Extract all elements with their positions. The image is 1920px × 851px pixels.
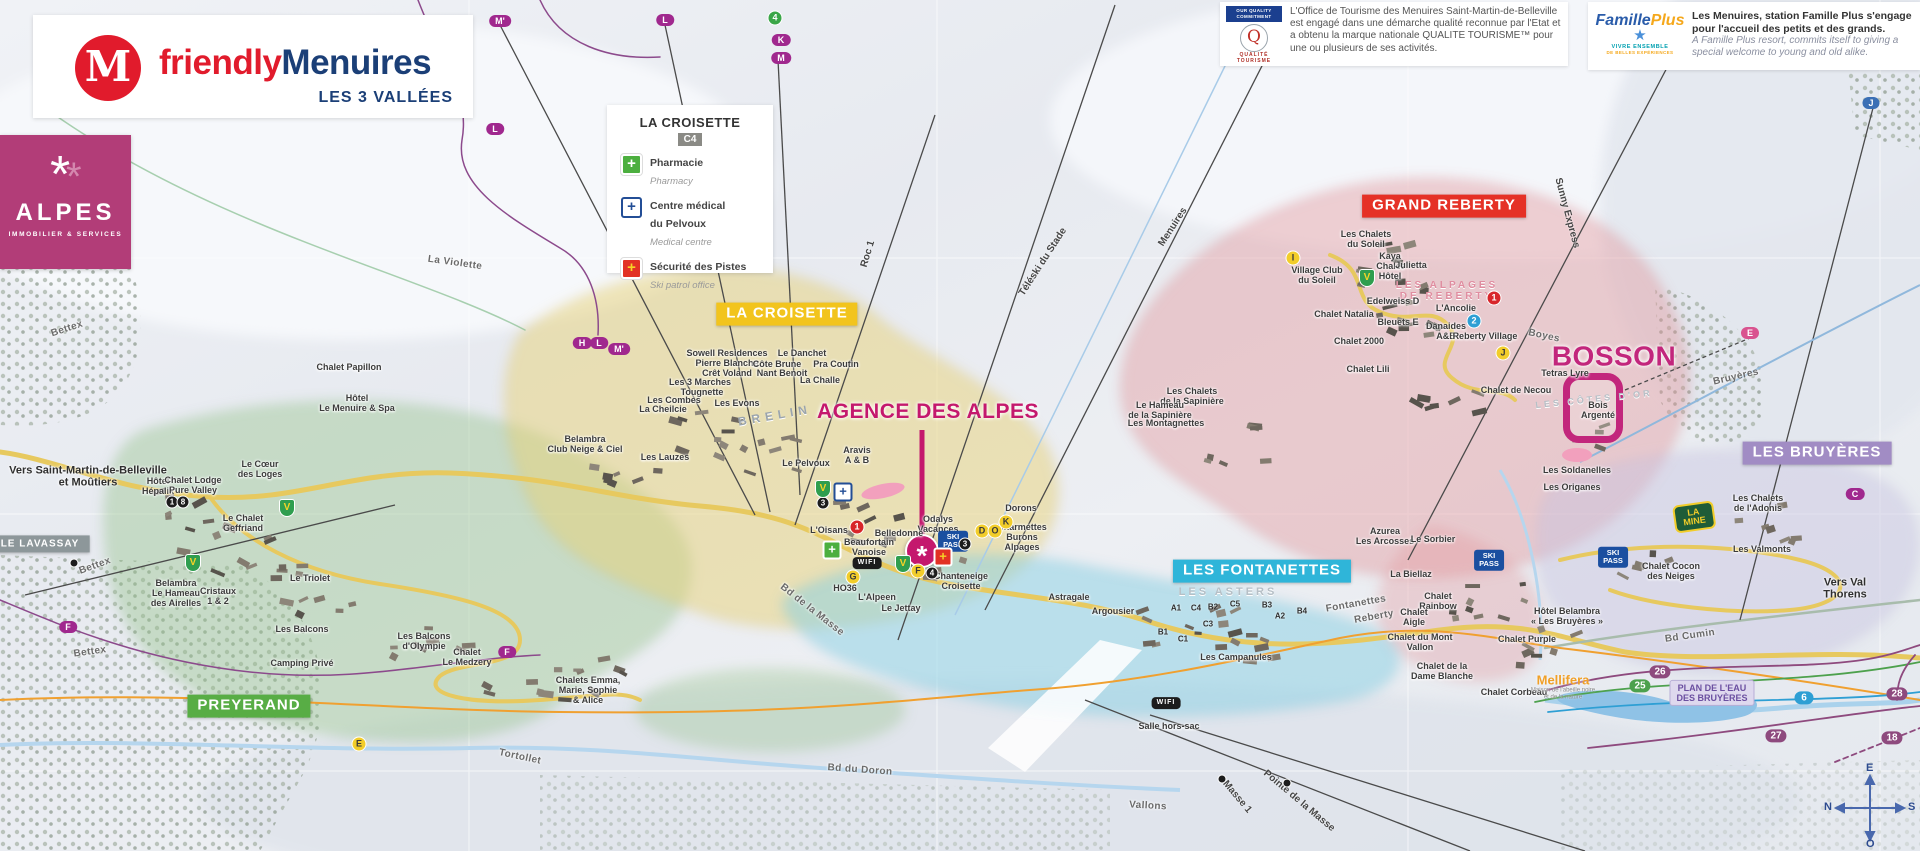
lift-station-H: H: [573, 337, 592, 349]
pharmacy-cross-icon: +: [621, 154, 642, 175]
legend-card: LA CROISETTE C4 + Pharmacie Pharmacy + C…: [607, 105, 773, 273]
lift-station-J: J: [1862, 97, 1879, 109]
menuires-m-icon: M: [75, 35, 141, 101]
wifi-badge: WIFI: [853, 557, 882, 569]
map-place-label: Azurea Les Arcosses: [1356, 526, 1414, 546]
agency-subtitle: IMMOBILIER & SERVICES: [0, 231, 131, 238]
map-place-label: Chalet Lodge Pure Valley: [164, 475, 221, 495]
map-place-label: Le Danchet: [778, 348, 827, 358]
lift-station-E: E: [1741, 327, 1759, 339]
la-mine-badge: LA MINE: [1672, 500, 1716, 533]
map-place-label: Chalet Aigle: [1400, 607, 1428, 627]
map-place-label: La Challe: [800, 375, 840, 385]
map-place-label: Bd du Doron: [827, 762, 893, 778]
ski-patrol-cross-icon: +: [621, 258, 642, 279]
poi-marker-8: 8: [177, 496, 190, 509]
map-place-label: Les Evons: [714, 398, 759, 408]
map-place-label: C3: [1203, 621, 1213, 630]
poi-marker-1: 1: [850, 520, 865, 535]
zone-banner-les-bruyeres: LES BRUYÈRES: [1743, 442, 1892, 465]
poi-marker-3: 3: [817, 497, 830, 510]
brand-menuires: Menuires: [281, 43, 431, 82]
les-menuires-resort-map: LA CROISETTEGRAND REBERTYLES FONTANETTES…: [0, 0, 1920, 851]
resort-brand: friendlyMenuires: [159, 43, 431, 83]
map-place-label: B1: [1158, 629, 1168, 638]
map-place-label: Reberty: [1353, 608, 1394, 626]
map-place-label: Le Jettay: [881, 603, 920, 613]
resort-logo-card: M friendlyMenuires LES 3 VALLÉES: [33, 15, 473, 118]
village-shield-icon: V: [815, 480, 831, 498]
plan-eau-badge: PLAN DE L'EAU DES BRUYÈRES: [1669, 680, 1754, 706]
map-place-label: Le Triolet: [290, 573, 330, 583]
lift-station-L: L: [486, 123, 504, 135]
map-place-label: La Cheilcie: [639, 404, 687, 414]
map-place-label: Edelweiss D: [1367, 296, 1420, 306]
legend-label-en: Pharmacy: [650, 176, 693, 187]
map-place-label: Bois Argenté: [1581, 400, 1615, 420]
map-place-label: Cristaux 1 & 2: [200, 586, 236, 606]
map-place-label: Salle hors-sac: [1138, 721, 1199, 731]
famille-plus-text-en: A Famille Plus resort, commits itself to…: [1692, 35, 1914, 59]
ski-pass-badge: SKI PASS: [1598, 547, 1628, 568]
map-place-label: La Biellaz: [1390, 569, 1432, 579]
map-place-label: Pointe de la Masse: [1261, 768, 1337, 834]
map-place-label: Les Chalets du Soleil: [1341, 229, 1392, 249]
quality-tourism-card: OUR QUALITY COMMITMENT Q QUALITÉ TOURISM…: [1220, 2, 1568, 66]
quality-commitment-badge: OUR QUALITY COMMITMENT: [1226, 6, 1282, 22]
map-place-label: Hôtel Belambra « Les Bruyères »: [1531, 606, 1603, 626]
map-place-label: Chalet de la Dame Blanche: [1411, 661, 1473, 681]
map-place-label: Pra Coutin: [813, 359, 859, 369]
map-place-label: C4: [1191, 605, 1201, 614]
map-place-label: Les Origanes: [1543, 482, 1600, 492]
legend-label-fr: Pharmacie: [650, 157, 703, 169]
mellifera-sub: Maison de l'abeille noire et de la natur…: [1531, 687, 1595, 700]
poi-marker-4: 4: [926, 567, 939, 580]
map-place-label: Les Soldanelles: [1543, 465, 1611, 475]
map-place-label: A1: [1171, 605, 1181, 614]
compass-top: E: [1866, 762, 1873, 774]
map-place-label: B4: [1297, 608, 1307, 617]
map-place-label: Reberty Village: [1453, 331, 1518, 341]
lift-station-C: C: [1846, 488, 1865, 500]
trail-badge-18: 18: [1881, 731, 1902, 744]
qualite-tourisme-icon: Q: [1240, 24, 1268, 52]
famille-plus-logo: FamillePlus ★ VIVRE ENSEMBLE DE BELLES E…: [1594, 6, 1686, 66]
map-place-label: Belambra Club Neige & Ciel: [547, 434, 622, 454]
map-place-label: Le Chalet Geffriand: [223, 513, 264, 533]
famille-plus-star-icon: ★: [1594, 30, 1686, 42]
agence-des-alpes-title: AGENCE DES ALPES: [817, 400, 1039, 424]
legend-label-en: Ski patrol office: [650, 280, 715, 291]
map-place-label: Julietta: [1395, 260, 1427, 270]
map-place-label: Hôtel Le Menuire & Spa: [319, 393, 395, 413]
map-place-label: Chalet Papillon: [316, 362, 381, 372]
map-place-label: Village Club du Soleil: [1291, 265, 1342, 285]
legend-item-ski-patrol: + Sécurité des Pistes Ski patrol office: [621, 257, 773, 293]
poi-marker-4: 4: [768, 11, 783, 26]
map-place-label: B2: [1208, 604, 1218, 613]
map-place-label: Dorons: [1005, 503, 1037, 513]
trail-badge-26: 26: [1649, 665, 1670, 678]
lift-station-K: K: [772, 34, 791, 46]
map-place-label: L'Alpeen: [858, 592, 896, 602]
lift-station-L: L: [590, 337, 608, 349]
stop-marker-F: F: [911, 564, 926, 579]
map-place-label: La Violette: [427, 254, 483, 273]
map-place-label: Tetras Lyre: [1541, 368, 1589, 378]
map-place-label: Argousier: [1092, 606, 1135, 616]
poi-marker-1: 1: [1487, 291, 1502, 306]
map-place-label: L'Ancolie: [1436, 303, 1476, 313]
map-place-label: Bettex: [78, 555, 113, 577]
map-place-label: Le Cœur des Loges: [238, 459, 283, 479]
compass-rose: E N S O: [1828, 768, 1912, 848]
map-place-label: Chalets Emma, Marie, Sophie & Alice: [556, 675, 621, 705]
map-labels-layer: LA CROISETTEGRAND REBERTYLES FONTANETTES…: [0, 0, 1920, 851]
map-place-label: Chalet Cocon des Neiges: [1642, 561, 1700, 581]
map-place-label: Chalet Natalia: [1314, 309, 1374, 319]
compass-left: N: [1824, 801, 1832, 813]
map-place-label: Bettex: [73, 644, 107, 660]
legend-grid-ref: C4: [678, 133, 702, 146]
gondola-icon: [1283, 779, 1292, 788]
trail-badge-28: 28: [1886, 687, 1907, 700]
ski-pass-badge: SKI PASS: [1474, 550, 1504, 571]
map-place-label: Vers Val Thorens: [1808, 577, 1883, 602]
map-place-label: Chalet Purple: [1498, 634, 1556, 644]
trail-badge-25: 25: [1629, 679, 1650, 692]
map-place-label: C5: [1230, 601, 1240, 610]
legend-item-pharmacy: + Pharmacie Pharmacy: [621, 153, 773, 189]
medical-cross-icon: +: [834, 483, 853, 502]
map-place-label: Astragale: [1048, 592, 1089, 602]
map-place-label: A2: [1275, 613, 1285, 622]
qualite-tourisme-wordmark: QUALITÉ TOURISME: [1226, 52, 1282, 65]
map-place-label: Les Campanules: [1200, 652, 1272, 662]
map-place-label: Sunny Express: [1552, 177, 1582, 250]
alpes-agency-card: * * ALPES IMMOBILIER & SERVICES: [0, 135, 131, 269]
stop-marker-K: K: [999, 515, 1014, 530]
lift-station-M-prime: M': [608, 343, 630, 355]
plus-wordmark: Plus: [1651, 12, 1685, 29]
map-place-label: Le Sorbier: [1411, 534, 1456, 544]
map-place-label: Bleuets E: [1377, 317, 1418, 327]
map-place-label: Roc 1: [859, 239, 878, 268]
lift-station-M-prime: M': [489, 15, 511, 27]
zone-banner-les-fontanettes: LES FONTANETTES: [1173, 560, 1351, 583]
brand-subtitle: LES 3 VALLÉES: [318, 89, 453, 107]
map-place-label: Masse 1: [1220, 778, 1254, 815]
map-place-label: Les Montagnettes: [1128, 418, 1205, 428]
ski-patrol-cross-icon: +: [934, 548, 953, 567]
map-place-label: L'Oisans: [810, 525, 848, 535]
map-place-label: Les Lauzes: [641, 452, 690, 462]
famille-plus-card: FamillePlus ★ VIVRE ENSEMBLE DE BELLES E…: [1588, 2, 1920, 70]
poi-marker-2: 2: [1467, 314, 1482, 329]
zone-banner-le-lavassay: LE LAVASSAY: [0, 535, 89, 552]
trail-badge-27: 27: [1765, 729, 1786, 742]
lift-station-F: F: [498, 646, 516, 658]
compass-arrows-icon: [1828, 768, 1912, 848]
map-place-label: Chalet de Necou: [1481, 385, 1552, 395]
gondola-icon: [1218, 775, 1227, 784]
map-place-label: Vallons: [1129, 799, 1167, 812]
map-place-label: Tortollet: [498, 747, 542, 767]
map-place-label: Les Chalets de l'Adonis: [1733, 493, 1784, 513]
map-place-label: Les Valmonts: [1733, 544, 1791, 554]
legend-label-fr: Centre médical du Pelvoux: [650, 200, 725, 230]
map-place-label: Chalet Lili: [1346, 364, 1389, 374]
village-shield-icon: V: [279, 499, 295, 517]
map-place-label: Le Pelvoux: [782, 458, 830, 468]
map-place-label: Les Balcons: [275, 624, 328, 634]
poi-marker-3: 3: [959, 538, 972, 551]
map-place-label: Bruyères: [1712, 366, 1760, 387]
map-place-label: Chalet 2000: [1334, 336, 1384, 346]
lift-station-M: M: [771, 52, 791, 64]
map-place-label: C1: [1178, 636, 1188, 645]
zone-banner-grand-reberty: GRAND REBERTY: [1362, 195, 1526, 218]
village-shield-icon: V: [1359, 269, 1375, 287]
stop-marker-I: I: [1286, 251, 1301, 266]
stop-marker-G: G: [846, 570, 861, 585]
map-place-label: Chalet du Mont Vallon: [1388, 632, 1453, 652]
alpes-snowflake-icon: * *: [0, 143, 131, 201]
quality-tourism-text: L'Office de Tourisme des Menuires Saint-…: [1290, 6, 1562, 62]
pharmacy-cross-icon: +: [823, 541, 842, 560]
map-place-label: Chalet Le Medzery: [442, 647, 491, 667]
map-place-label: Chanteneige Croisette: [934, 571, 988, 591]
lift-station-L: L: [656, 14, 674, 26]
map-place-label: Aravis A & B: [843, 445, 871, 465]
brand-friendly: friendly: [159, 43, 281, 82]
wifi-badge: WIFI: [1152, 697, 1181, 709]
village-shield-icon: V: [185, 554, 201, 572]
zone-banner-preyerand: PREYERAND: [187, 695, 310, 718]
mellifera-label: Mellifera: [1537, 674, 1590, 689]
famille-plus-text-fr: Les Menuires, station Famille Plus s'eng…: [1692, 10, 1914, 35]
zone-banner-la-croisette: LA CROISETTE: [716, 303, 857, 326]
map-place-label: Camping Privé: [270, 658, 333, 668]
legend-label-fr: Sécurité des Pistes: [650, 261, 746, 273]
legend-label-en: Medical centre: [650, 237, 712, 248]
stop-marker-J: J: [1496, 346, 1511, 361]
legend-item-medical: + Centre médical du Pelvoux Medical cent…: [621, 196, 773, 250]
compass-bottom: O: [1866, 838, 1875, 850]
famille-plus-tagline-2: DE BELLES EXPÉRIENCES: [1594, 50, 1686, 55]
map-place-label: Beaufortain Vanoise: [844, 537, 894, 557]
map-place-label: Téléski du Stade: [1017, 226, 1069, 298]
map-place-label: Belambra Le Hameau des Airelles: [151, 578, 201, 608]
legend-title: LA CROISETTE: [607, 115, 773, 130]
village-shield-icon: V: [895, 555, 911, 573]
medical-cross-icon: +: [621, 197, 642, 218]
map-place-label: Menuires: [1156, 206, 1189, 249]
map-place-label: Bd Cumin: [1664, 627, 1715, 645]
stop-marker-E: E: [352, 737, 367, 752]
gondola-icon: [70, 559, 79, 568]
map-place-label: Les 3 Marches: [669, 377, 731, 387]
map-place-label: Bettex: [50, 319, 85, 340]
map-place-label: B3: [1262, 602, 1272, 611]
compass-right: S: [1908, 801, 1915, 813]
trail-badge-6: 6: [1795, 691, 1814, 704]
map-place-label: Boyes: [1527, 327, 1561, 345]
map-place-label: LES ASTERS: [1179, 586, 1278, 598]
lift-station-F: F: [59, 621, 77, 633]
